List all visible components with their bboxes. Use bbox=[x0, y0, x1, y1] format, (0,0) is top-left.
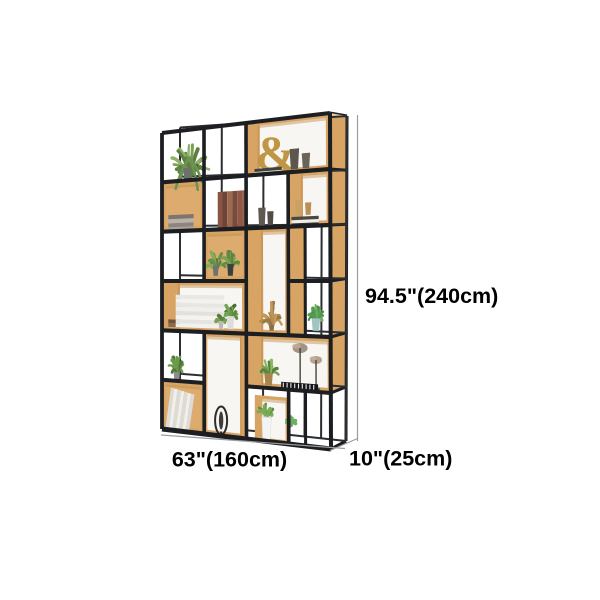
svg-text:94.5"(240cm): 94.5"(240cm) bbox=[365, 284, 498, 308]
svg-text:10"(25cm): 10"(25cm) bbox=[349, 447, 452, 471]
svg-text:63"(160cm): 63"(160cm) bbox=[172, 448, 287, 472]
